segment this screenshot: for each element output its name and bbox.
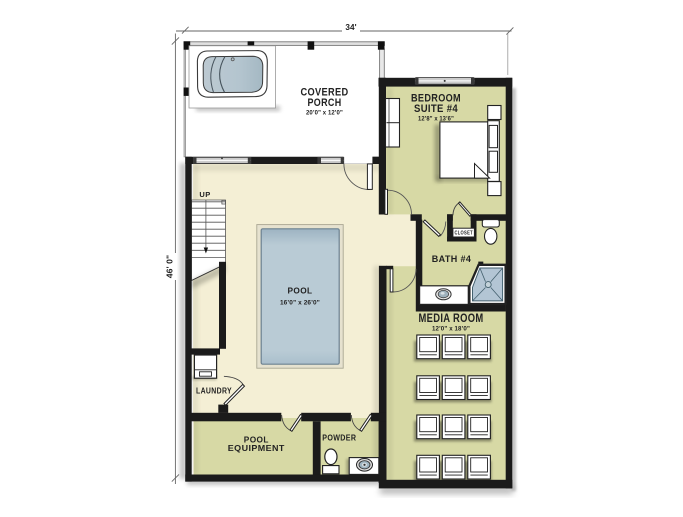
- svg-text:MEDIA ROOM: MEDIA ROOM: [419, 313, 484, 325]
- svg-text:20’0” x 12’0”: 20’0” x 12’0”: [306, 110, 343, 117]
- svg-text:PORCH: PORCH: [308, 97, 342, 109]
- svg-text:POWDER: POWDER: [322, 433, 356, 443]
- svg-text:UP: UP: [199, 190, 210, 199]
- svg-text:12’8” x 13’6”: 12’8” x 13’6”: [418, 116, 454, 123]
- svg-text:SUITE #4: SUITE #4: [414, 103, 458, 115]
- svg-text:46' 0": 46' 0": [166, 255, 175, 279]
- svg-text:POOL: POOL: [288, 286, 313, 296]
- svg-text:CLOSET: CLOSET: [454, 231, 473, 237]
- svg-text:LAUNDRY: LAUNDRY: [196, 386, 232, 395]
- svg-text:16’0” x 26’0”: 16’0” x 26’0”: [280, 299, 320, 306]
- svg-text:EQUIPMENT: EQUIPMENT: [228, 443, 285, 453]
- svg-text:BATH #4: BATH #4: [432, 254, 472, 265]
- svg-text:12’0” x 18’0”: 12’0” x 18’0”: [432, 326, 470, 333]
- svg-text:34': 34': [345, 23, 356, 32]
